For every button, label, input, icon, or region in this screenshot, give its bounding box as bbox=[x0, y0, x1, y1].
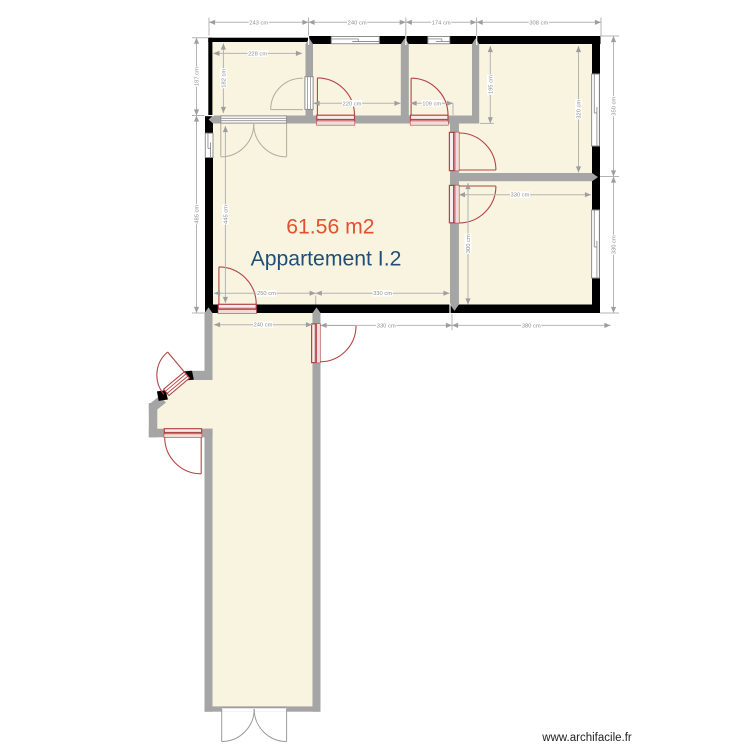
svg-text:300 cm: 300 cm bbox=[466, 234, 472, 253]
svg-text:174 cm: 174 cm bbox=[432, 20, 451, 26]
svg-text:187 cm: 187 cm bbox=[195, 67, 201, 86]
svg-text:308 cm: 308 cm bbox=[529, 20, 548, 26]
svg-text:61.56 m2: 61.56 m2 bbox=[286, 216, 374, 239]
svg-text:182 cm: 182 cm bbox=[221, 69, 227, 88]
svg-text:228 cm: 228 cm bbox=[248, 51, 267, 57]
svg-text:445 cm: 445 cm bbox=[223, 205, 229, 224]
svg-text:380 cm: 380 cm bbox=[522, 323, 541, 329]
svg-text:www.archifacile.fr: www.archifacile.fr bbox=[541, 732, 632, 744]
svg-text:330 cm: 330 cm bbox=[373, 291, 392, 297]
svg-text:320 cm: 320 cm bbox=[577, 100, 583, 119]
svg-text:Appartement I.2: Appartement I.2 bbox=[251, 248, 402, 271]
svg-text:240 cm: 240 cm bbox=[348, 20, 367, 26]
svg-text:243 cm: 243 cm bbox=[249, 20, 268, 26]
svg-text:330 cm: 330 cm bbox=[377, 323, 396, 329]
svg-text:330 cm: 330 cm bbox=[510, 193, 529, 199]
svg-text:220 cm: 220 cm bbox=[342, 101, 361, 107]
svg-text:330 cm: 330 cm bbox=[612, 235, 618, 254]
svg-text:250 cm: 250 cm bbox=[257, 291, 276, 297]
svg-text:195 cm: 195 cm bbox=[488, 75, 494, 94]
svg-text:109 cm: 109 cm bbox=[422, 101, 441, 107]
svg-text:240 cm: 240 cm bbox=[253, 323, 272, 329]
svg-text:485 cm: 485 cm bbox=[195, 205, 201, 224]
svg-text:350 cm: 350 cm bbox=[612, 97, 618, 116]
